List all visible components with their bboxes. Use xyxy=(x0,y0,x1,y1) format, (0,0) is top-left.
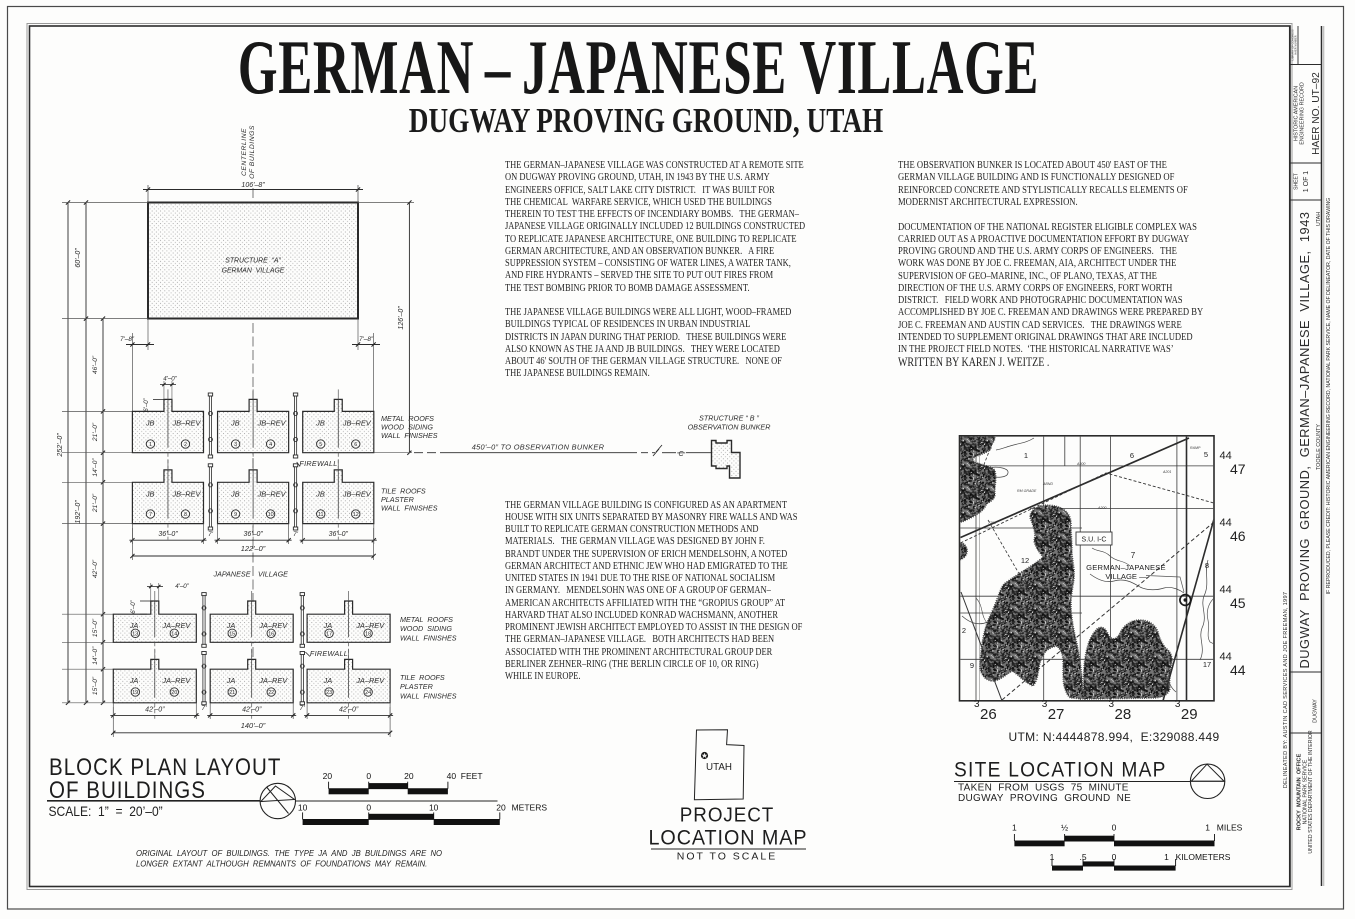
svg-text:TOOELE COUNTY: TOOELE COUNTY xyxy=(1316,424,1322,470)
svg-text:29: 29 xyxy=(1181,706,1198,723)
svg-text:JB: JB xyxy=(230,489,240,498)
svg-text:HAER NUMBER: HAER NUMBER xyxy=(1293,35,1297,54)
svg-text:21'–0”: 21'–0” xyxy=(92,493,99,513)
svg-text:1: 1 xyxy=(1024,451,1028,460)
svg-text:6'–0”: 6'–0” xyxy=(130,599,137,614)
svg-text:S.U. I-C: S.U. I-C xyxy=(1082,537,1107,544)
svg-text:WALL FINISHES: WALL FINISHES xyxy=(400,633,457,642)
svg-text:46: 46 xyxy=(1230,528,1246,544)
svg-text:GERMAN VILLAGE: GERMAN VILLAGE xyxy=(222,268,285,275)
svg-text:½: ½ xyxy=(1061,823,1068,833)
svg-text:15'–0”: 15'–0” xyxy=(92,618,99,637)
svg-text:FIREWALL: FIREWALL xyxy=(299,459,337,468)
svg-text:CENTERLINE: CENTERLINE xyxy=(241,128,248,176)
svg-text:FEET: FEET xyxy=(461,771,483,781)
svg-text:7': 7' xyxy=(300,705,306,712)
svg-text:A200: A200 xyxy=(1097,506,1106,510)
svg-text:RAMP: RAMP xyxy=(1190,446,1201,450)
svg-text:SHEET: SHEET xyxy=(1294,173,1300,190)
svg-text:7: 7 xyxy=(1131,551,1136,560)
svg-text:27: 27 xyxy=(1048,706,1065,723)
svg-text:JA: JA xyxy=(129,676,139,685)
svg-text:IF REPRODUCED, PLEASE CREDIT:: IF REPRODUCED, PLEASE CREDIT: HISTORIC A… xyxy=(1326,198,1332,595)
svg-text:20: 20 xyxy=(404,771,414,781)
svg-text:1: 1 xyxy=(1205,823,1210,833)
svg-text:JA–REV: JA–REV xyxy=(161,676,191,685)
svg-text:OF BUILDINGS: OF BUILDINGS xyxy=(249,125,256,179)
svg-text:JA: JA xyxy=(129,621,139,630)
svg-text:METERS: METERS xyxy=(512,803,548,813)
svg-text:11: 11 xyxy=(318,512,324,518)
svg-text:7': 7' xyxy=(208,531,214,538)
svg-text:17: 17 xyxy=(326,632,332,638)
svg-text:13: 13 xyxy=(132,632,138,638)
svg-text:NOT TO SCALE: NOT TO SCALE xyxy=(677,851,777,863)
svg-text:14: 14 xyxy=(171,632,177,638)
svg-text:7': 7' xyxy=(293,531,299,538)
svg-text:5: 5 xyxy=(1204,450,1208,459)
svg-text:36'–0”: 36'–0” xyxy=(158,531,178,538)
svg-text:47: 47 xyxy=(1230,461,1246,477)
svg-text:9: 9 xyxy=(234,512,237,518)
svg-text:JA–REV: JA–REV xyxy=(161,621,191,630)
svg-text:19: 19 xyxy=(132,690,138,696)
svg-text:15: 15 xyxy=(229,632,235,638)
svg-text:4'–0”: 4'–0” xyxy=(175,583,190,590)
svg-text:JA–REV: JA–REV xyxy=(355,621,385,630)
svg-text:DUGWAY PROVING GROUND, GERM: DUGWAY PROVING GROUND, GERMAN–JAPANESE V… xyxy=(1297,211,1312,668)
svg-text:28: 28 xyxy=(1115,706,1132,723)
svg-text:2: 2 xyxy=(184,442,187,448)
svg-text:JB: JB xyxy=(315,489,325,498)
svg-text:42'–0”: 42'–0” xyxy=(92,559,99,578)
svg-text:6'–0”: 6'–0” xyxy=(143,397,150,412)
svg-text:STRUCTURE “A”: STRUCTURE “A” xyxy=(225,258,281,265)
svg-text:MILES: MILES xyxy=(1217,823,1243,833)
svg-text:140'–0”: 140'–0” xyxy=(241,721,266,730)
svg-text:ORIGINAL LAYOUT OF BUILDING: ORIGINAL LAYOUT OF BUILDINGS. THE TYPE J… xyxy=(136,849,442,858)
svg-text:SCALE: 1” = 20’–0”: SCALE: 1” = 20’–0” xyxy=(49,803,163,819)
svg-text:46'–0”: 46'–0” xyxy=(92,355,99,374)
svg-text:1 OF 1: 1 OF 1 xyxy=(1303,171,1310,193)
svg-text:JA: JA xyxy=(226,676,236,685)
svg-text:36'–0”: 36'–0” xyxy=(243,531,263,538)
svg-text:0: 0 xyxy=(1112,823,1117,833)
svg-text:5: 5 xyxy=(319,442,322,448)
svg-text:20: 20 xyxy=(496,803,506,813)
svg-text:ENGINEERING RECORD: ENGINEERING RECORD xyxy=(1300,82,1306,145)
svg-text:RM GRADE: RM GRADE xyxy=(1017,489,1037,493)
svg-text:20: 20 xyxy=(323,771,333,781)
svg-text:8: 8 xyxy=(1205,561,1209,570)
svg-text:23: 23 xyxy=(326,690,332,696)
svg-text:JB: JB xyxy=(145,418,155,427)
svg-text:45: 45 xyxy=(1230,595,1246,611)
svg-text:LONGER EXTANT ALTHOUGH REMN: LONGER EXTANT ALTHOUGH REMNANTS OF FOUND… xyxy=(136,859,427,868)
svg-text:4: 4 xyxy=(269,442,272,448)
svg-text:UTAH: UTAH xyxy=(1316,212,1322,226)
svg-text:1: 1 xyxy=(1050,852,1055,862)
svg-text:DUGWAY PROVING GROUND NE: DUGWAY PROVING GROUND NE xyxy=(958,793,1131,804)
svg-text:VILLAGE: VILLAGE xyxy=(258,570,288,579)
svg-text:JAPANESE: JAPANESE xyxy=(212,570,250,579)
svg-text:STRUCTURE “ B ”: STRUCTURE “ B ” xyxy=(699,414,760,423)
svg-text:7': 7' xyxy=(202,705,208,712)
svg-text:WALL FINISHES: WALL FINISHES xyxy=(400,691,457,700)
svg-text:PROJECT: PROJECT xyxy=(680,804,774,827)
svg-text:A201: A201 xyxy=(1162,470,1171,474)
svg-text:FIREWALL: FIREWALL xyxy=(310,649,348,658)
svg-text:0: 0 xyxy=(1112,852,1117,862)
svg-text:KILOMETERS: KILOMETERS xyxy=(1176,852,1231,862)
svg-text:42'–0”: 42'–0” xyxy=(242,707,262,714)
svg-text:ABND: ABND xyxy=(1042,482,1053,486)
svg-text:10: 10 xyxy=(268,512,274,518)
svg-text:16: 16 xyxy=(268,632,274,638)
svg-text:VILLAGE —: VILLAGE — xyxy=(1105,572,1147,581)
svg-text:60'–0”: 60'–0” xyxy=(75,248,82,268)
svg-text:JB–REV: JB–REV xyxy=(257,489,287,498)
svg-text:JA: JA xyxy=(323,676,333,685)
svg-text:26: 26 xyxy=(980,706,997,723)
svg-text:106'–8”: 106'–8” xyxy=(241,182,265,189)
svg-text:JA–REV: JA–REV xyxy=(355,676,385,685)
svg-text:7: 7 xyxy=(149,512,152,518)
svg-text:3: 3 xyxy=(234,442,237,448)
svg-text:.5: .5 xyxy=(1079,852,1086,862)
svg-text:18: 18 xyxy=(365,632,371,638)
svg-text:10: 10 xyxy=(298,803,308,813)
svg-text:42'–0”: 42'–0” xyxy=(339,707,359,714)
svg-text:20: 20 xyxy=(171,690,177,696)
svg-text:PLASTER: PLASTER xyxy=(400,682,433,691)
svg-text:44: 44 xyxy=(1230,662,1246,678)
svg-text:10: 10 xyxy=(429,803,439,813)
svg-text:JB: JB xyxy=(315,418,325,427)
svg-text:2: 2 xyxy=(962,626,966,635)
svg-text:8: 8 xyxy=(184,512,187,518)
svg-text:JA: JA xyxy=(226,621,236,630)
svg-text:WOOD SIDING: WOOD SIDING xyxy=(400,624,452,633)
svg-text:JB: JB xyxy=(230,418,240,427)
svg-text:1: 1 xyxy=(1164,852,1169,862)
svg-text:40: 40 xyxy=(447,771,457,781)
svg-text:6: 6 xyxy=(1130,451,1134,460)
svg-text:192'–0”: 192'–0” xyxy=(75,500,82,524)
svg-text:OBSERVATION BUNKER: OBSERVATION BUNKER xyxy=(688,423,771,432)
svg-text:UTM: N:4444878.994, E:329088.: UTM: N:4444878.994, E:329088.449 xyxy=(1008,730,1219,744)
svg-text:JB–REV: JB–REV xyxy=(342,489,372,498)
svg-text:WALL FINISHES: WALL FINISHES xyxy=(381,504,438,513)
svg-text:A300: A300 xyxy=(1076,462,1085,466)
svg-text:TILE ROOFS: TILE ROOFS xyxy=(400,673,445,682)
svg-text:JB–REV: JB–REV xyxy=(342,418,372,427)
svg-text:7'–8”: 7'–8” xyxy=(359,336,374,343)
svg-text:36'–0”: 36'–0” xyxy=(329,531,349,538)
svg-text:0: 0 xyxy=(366,771,371,781)
svg-text:UTAH: UTAH xyxy=(706,762,732,773)
svg-text:OF BUILDINGS: OF BUILDINGS xyxy=(49,776,206,803)
svg-text:24: 24 xyxy=(365,690,371,696)
svg-text:7200: 7200 xyxy=(988,521,996,525)
svg-text:4'–0”: 4'–0” xyxy=(163,376,178,383)
svg-text:JB–REV: JB–REV xyxy=(171,418,201,427)
svg-text:DELINEATED BY: AUSTIN CAD SERV: DELINEATED BY: AUSTIN CAD SERVICES AND J… xyxy=(1283,592,1289,789)
svg-text:14'–0”: 14'–0” xyxy=(92,458,99,477)
svg-text:21: 21 xyxy=(229,690,235,696)
svg-text:12: 12 xyxy=(353,512,359,518)
svg-text:METAL ROOFS: METAL ROOFS xyxy=(400,615,453,624)
svg-text:21'–0”: 21'–0” xyxy=(92,422,99,442)
svg-text:9: 9 xyxy=(970,661,974,670)
svg-text:6: 6 xyxy=(354,442,357,448)
svg-text:JA–REV: JA–REV xyxy=(258,621,288,630)
svg-text:450'–0” TO OBSERVATION BUNKER: 450'–0” TO OBSERVATION BUNKER xyxy=(472,443,605,452)
svg-text:17: 17 xyxy=(1203,660,1211,669)
svg-text:1: 1 xyxy=(149,442,152,448)
svg-text:122'–0”: 122'–0” xyxy=(241,544,266,553)
svg-text:252'–0”: 252'–0” xyxy=(57,433,64,458)
svg-text:JB–REV: JB–REV xyxy=(171,489,201,498)
svg-text:DUGWAY: DUGWAY xyxy=(1313,699,1319,723)
svg-text:C: C xyxy=(678,451,684,458)
svg-text:15'–0”: 15'–0” xyxy=(92,676,99,695)
svg-text:7'–8”: 7'–8” xyxy=(120,336,135,343)
svg-text:WALL FINISHES: WALL FINISHES xyxy=(381,431,438,440)
svg-text:JA: JA xyxy=(323,621,333,630)
svg-text:SITE LOCATION MAP: SITE LOCATION MAP xyxy=(954,759,1167,782)
svg-text:LOCATION MAP: LOCATION MAP xyxy=(649,826,808,850)
svg-text:JA–REV: JA–REV xyxy=(258,676,288,685)
svg-text:1: 1 xyxy=(1012,823,1017,833)
svg-text:GERMAN–JAPANESE: GERMAN–JAPANESE xyxy=(1086,563,1166,572)
svg-text:12: 12 xyxy=(1021,556,1029,565)
svg-text:UNITED STATES DEPARTMENT OF TH: UNITED STATES DEPARTMENT OF THE INTERIOR xyxy=(1308,730,1314,854)
svg-text:22: 22 xyxy=(268,690,274,696)
svg-text:14'–0”: 14'–0” xyxy=(92,646,99,665)
svg-text:JB–REV: JB–REV xyxy=(257,418,287,427)
svg-text:0: 0 xyxy=(366,803,371,813)
svg-text:126'–0”: 126'–0” xyxy=(398,306,405,330)
svg-text:JB: JB xyxy=(145,489,155,498)
svg-text:HAER NO. UT–92: HAER NO. UT–92 xyxy=(1311,72,1322,155)
svg-text:42'–0”: 42'–0” xyxy=(145,707,165,714)
